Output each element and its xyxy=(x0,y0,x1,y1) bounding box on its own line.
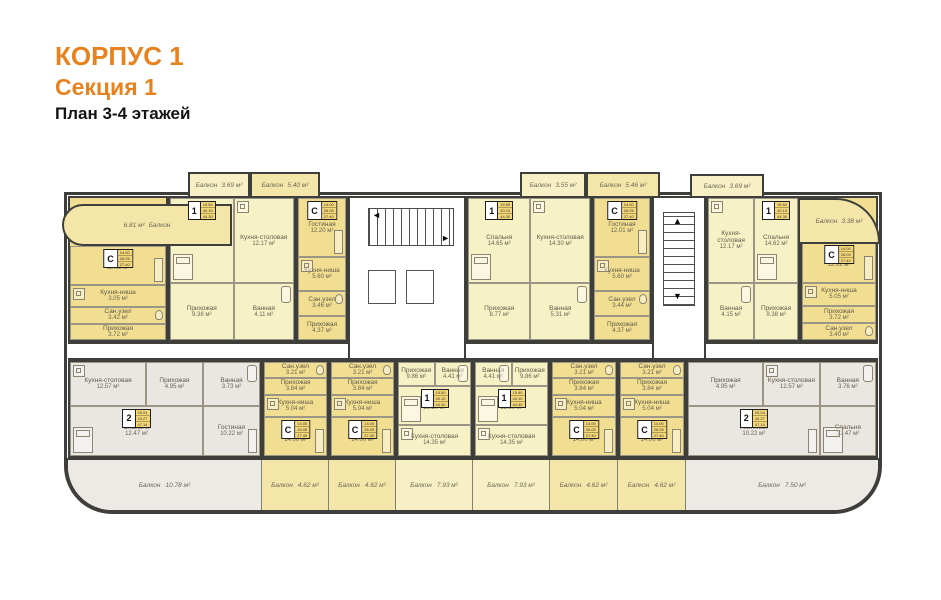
apartment-type-badge: 115.5040.1044.30 xyxy=(497,389,525,408)
area-table-value: 27.40 xyxy=(118,262,132,267)
bathtub-icon xyxy=(458,365,468,382)
room-hallway: Прихожая8.77 м² xyxy=(468,283,530,340)
room-name-label: Кухня-столовая xyxy=(537,234,584,241)
apartment-type-badge: С14.0026.0527.40 xyxy=(103,249,133,268)
apartment-type-badge: 115.5040.1044.30 xyxy=(420,389,448,408)
staircase-icon: ◄► xyxy=(368,208,454,246)
balcony-top-2: Балкон3.69 м² xyxy=(188,172,250,198)
room-kitchen-dining: Кухня-столовая14.30 м² xyxy=(530,198,590,283)
area-table-value: 44.30 xyxy=(511,402,525,407)
apartment-area-table: 15.5040.1044.30 xyxy=(497,202,512,219)
sofa-icon xyxy=(638,230,647,254)
room-area-label: 3.42 м² xyxy=(108,315,127,322)
room-hallway: Прихожая3.84 м² xyxy=(264,378,327,394)
room-area-label: 4.95 м² xyxy=(716,384,735,391)
bathtub-icon xyxy=(281,286,291,303)
apartment-unit-lower-4: Прихожая9.86 м²Ванная4.41 м²Спальня15.50… xyxy=(396,360,473,458)
area-table-value: 27.40 xyxy=(584,433,598,438)
room-hallway: Прихожая3.84 м² xyxy=(552,378,616,394)
room-name-label: Прихожая xyxy=(637,379,667,386)
apartment-type-letter: 2 xyxy=(123,410,134,427)
balcony-label: Балкон xyxy=(271,482,293,489)
room-name-label: Прихожая xyxy=(280,379,310,386)
bathtub-icon xyxy=(247,365,257,382)
room-area-label: 5.31 м² xyxy=(551,312,570,319)
apartment-area-table: 25.0443.2747.14 xyxy=(752,410,767,427)
room-name-label: Ванная xyxy=(720,305,742,312)
sofa-icon xyxy=(315,429,324,453)
room-name-label: Сан.узел xyxy=(349,363,376,370)
room-name-label: Ванная xyxy=(220,377,242,384)
stair-arrow-down-icon: ▼ xyxy=(673,292,682,301)
stair-core-1: ◄► xyxy=(348,196,466,360)
apartment-unit-upper-6: Кухня-столовая12.17 м²Спальня14.62 м²115… xyxy=(706,196,800,342)
room-hallway: Прихожая3.72 м² xyxy=(802,306,876,323)
room-name-label: Гостиная xyxy=(308,221,335,228)
room-bathroom: Ванная4.41 м² xyxy=(475,362,512,386)
stove-icon xyxy=(597,260,609,272)
balcony-bottom-8: Балкон7.50 м² xyxy=(686,460,878,510)
area-table-value: 27.40 xyxy=(622,214,636,219)
apartment-area-table: 14.0026.0527.40 xyxy=(361,421,376,438)
apartment-area-table: 14.0026.0527.40 xyxy=(294,421,309,438)
room-hallway: Прихожая3.72 м² xyxy=(70,324,166,340)
room-name-label: Прихожая xyxy=(761,305,791,312)
room-area-label: 9.86 м² xyxy=(520,374,539,381)
apartment-unit-upper-5: Гостиная12.01 м²С14.0026.0527.40Кухня-ни… xyxy=(592,196,652,342)
balcony-bottom-1: Балкон10.78 м² xyxy=(68,460,262,510)
balcony-label: Балкон xyxy=(410,482,432,489)
room-area-label: 3.73 м² xyxy=(222,384,241,391)
apartment-unit-upper-3: Гостиная12.20 м²С14.0026.0527.40Кухня-ни… xyxy=(296,196,348,342)
room-area-label: 14.62 м² xyxy=(765,241,788,248)
bathtub-icon xyxy=(499,365,509,382)
stair-core-2: ▲▼ xyxy=(652,196,706,360)
bed-icon xyxy=(401,396,421,422)
room-area-label: 12.17 м² xyxy=(720,244,743,251)
room-living-room: Гостиная10.22 м²225.0443.2747.14 xyxy=(688,406,820,456)
room-name-label: Кухня-ниша xyxy=(345,399,381,406)
apartment-unit-lower-2: Сан.узел3.21 м²Прихожая3.84 м²Кухня-ниша… xyxy=(262,360,329,458)
room-area-label: 3.40 м² xyxy=(829,332,848,339)
apartment-area-table: 14.0026.0527.40 xyxy=(117,250,132,267)
room-bathroom: Ванная3.73 м² xyxy=(203,362,260,406)
balcony-area-label: 4.62 м² xyxy=(298,482,319,489)
room-hallway: Прихожая3.84 м² xyxy=(620,378,684,394)
apartment-type-letter: 1 xyxy=(421,390,432,407)
apartment-type-letter: С xyxy=(570,421,583,438)
room-living-room: Гостиная14.00 м²С14.0026.0527.40 xyxy=(620,417,684,456)
room-area-label: 12.47 м² xyxy=(125,431,148,438)
apartment-unit-lower-8: Прихожая4.95 м²Кухня-столовая12.57 м²Ван… xyxy=(686,360,878,458)
bed-icon xyxy=(173,254,193,280)
room-wc: Сан.узел3.46 м² xyxy=(298,291,346,315)
apartment-unit-lower-1: Кухня-столовая12.57 м²Прихожая4.95 м²Ван… xyxy=(68,360,262,458)
apartment-type-letter: С xyxy=(104,250,117,267)
balcony-area-label: 5.40 м² xyxy=(287,182,308,189)
room-name-label: Прихожая xyxy=(607,321,637,328)
room-bedroom: Спальня12.47 м² xyxy=(820,406,876,456)
room-name-label: Прихожая xyxy=(401,367,431,374)
stove-icon xyxy=(334,398,346,410)
room-area-label: 12.57 м² xyxy=(97,384,120,391)
balcony-area-label: 4.62 м² xyxy=(586,482,607,489)
bed-icon xyxy=(823,427,843,453)
room-living-room: Гостиная12.02 м²С14.0026.0527.40 xyxy=(70,246,166,285)
balcony-area-label: 7.50 м² xyxy=(785,482,806,489)
room-name-label: Прихожая xyxy=(103,325,133,332)
room-name-label: Кухня-столовая xyxy=(84,377,131,384)
toilet-icon xyxy=(605,365,613,375)
apartment-type-badge: С14.0026.0527.40 xyxy=(607,201,637,220)
room-name-label: Кухня-столовая xyxy=(488,433,535,440)
room-wc: Сан.узел3.42 м² xyxy=(70,307,166,323)
room-name-label: Кухня-столовая xyxy=(411,433,458,440)
room-bathroom: Ванная4.15 м² xyxy=(708,283,754,340)
room-area-label: 3.84 м² xyxy=(642,386,661,393)
room-name-label: Кухня-ниша xyxy=(566,399,602,406)
room-living-room: Гостиная14.00 м²С14.0026.0527.40 xyxy=(552,417,616,456)
toilet-icon xyxy=(316,365,324,375)
stove-icon xyxy=(73,365,85,377)
balcony-area-label: 7.93 м² xyxy=(437,482,458,489)
room-bedroom: Спальня15.50 м²115.5040.1044.30 xyxy=(475,386,548,425)
room-kitchen-niche: Кухня-ниша5.05 м² xyxy=(802,283,876,306)
room-name-label: Кухня-ниша xyxy=(278,399,314,406)
balcony-area-label: 10.78 м² xyxy=(166,482,191,489)
room-area-label: 12.57 м² xyxy=(780,384,803,391)
room-name-label: Кухня-ниша xyxy=(100,289,136,296)
room-area-label: 5.04 м² xyxy=(642,406,661,413)
area-table-value: 27.40 xyxy=(362,433,376,438)
room-name-label: Сан.узел xyxy=(638,363,665,370)
sofa-icon xyxy=(604,429,613,453)
apartment-type-letter: С xyxy=(282,421,295,438)
room-bathroom: Ванная4.41 м² xyxy=(435,362,472,386)
room-hallway: Прихожая4.37 м² xyxy=(298,316,346,340)
balcony-label: Балкон xyxy=(196,182,218,189)
room-area-label: 3.84 м² xyxy=(574,386,593,393)
room-bathroom: Ванная4.11 м² xyxy=(234,283,294,340)
apartment-type-badge: 115.5040.1044.30 xyxy=(485,201,513,220)
room-name-label: Прихожая xyxy=(159,377,189,384)
room-kitchen-dining: Кухня-столовая12.57 м² xyxy=(70,362,146,406)
balcony-label: Балкон xyxy=(149,222,171,229)
sofa-icon xyxy=(382,429,391,453)
room-area-label: 5.60 м² xyxy=(612,274,631,281)
balcony-label: Балкон xyxy=(816,218,838,225)
room-area-label: 8.77 м² xyxy=(490,312,509,319)
room-kitchen-niche: Кухня-ниша5.60 м² xyxy=(298,257,346,291)
balcony-bottom-4: Балкон7.93 м² xyxy=(396,460,473,510)
apartment-type-letter: 1 xyxy=(189,202,200,219)
room-name-label: Прихожая xyxy=(569,379,599,386)
area-table-value: 44.30 xyxy=(775,214,789,219)
balcony-area-label: 3.55 м² xyxy=(555,182,576,189)
sofa-icon xyxy=(808,429,817,453)
balcony-bottom-7: Балкон4.62 м² xyxy=(618,460,686,510)
room-living-room: Гостиная12.20 м²С14.0026.0527.40 xyxy=(298,198,346,257)
stove-icon xyxy=(766,365,778,377)
apartment-area-table: 14.0026.0527.40 xyxy=(621,202,636,219)
room-area-label: 5.05 м² xyxy=(829,294,848,301)
room-area-label: 5.04 м² xyxy=(353,406,372,413)
apartment-type-badge: С14.0026.0527.40 xyxy=(307,201,337,220)
toilet-icon xyxy=(639,294,647,304)
apartment-area-table: 15.5040.1044.30 xyxy=(200,202,215,219)
balcony-label: Балкон xyxy=(338,482,360,489)
balcony-label: Балкон xyxy=(139,482,161,489)
balcony-bottom-6: Балкон4.62 м² xyxy=(550,460,618,510)
room-kitchen-niche: Кухня-ниша3.05 м² xyxy=(70,285,166,307)
room-area-label: 14.35 м² xyxy=(423,440,446,447)
room-area-label: 4.95 м² xyxy=(165,384,184,391)
apartment-type-letter: С xyxy=(608,202,621,219)
sofa-icon xyxy=(864,256,873,280)
room-kitchen-dining: Кухня-столовая12.57 м² xyxy=(763,362,819,406)
room-name-label: Сан.узел xyxy=(825,325,852,332)
staircase-icon: ▲▼ xyxy=(663,212,695,306)
room-kitchen-dining: Кухня-столовая14.35 м² xyxy=(398,425,471,456)
stove-icon xyxy=(401,428,413,440)
toilet-icon xyxy=(865,326,873,336)
room-bedroom: Спальня14.65 м²115.5040.1044.30 xyxy=(468,198,530,283)
room-area-label: 4.37 м² xyxy=(612,328,631,335)
stove-icon xyxy=(301,260,313,272)
area-table-value: 27.40 xyxy=(295,433,309,438)
balcony-strip-bottom: Балкон10.78 м²Балкон4.62 м²Балкон4.62 м²… xyxy=(66,458,880,512)
room-name-label: Прихожая xyxy=(711,377,741,384)
room-name-label: Ванная xyxy=(253,305,275,312)
balcony-top-3: Балкон5.40 м² xyxy=(250,172,320,198)
room-kitchen-dining: Кухня-столовая14.35 м² xyxy=(475,425,548,456)
room-hallway: Прихожая4.95 м² xyxy=(146,362,203,406)
room-area-label: 3.21 м² xyxy=(286,370,305,377)
room-area-label: 9.38 м² xyxy=(766,312,785,319)
balcony-label: Балкон xyxy=(758,482,780,489)
room-living-room: Гостиная12.01 м²С14.0026.0527.40 xyxy=(594,198,650,257)
balcony-label: Балкон xyxy=(262,182,284,189)
area-table-value: 47.14 xyxy=(135,422,149,427)
room-hallway: Прихожая9.38 м² xyxy=(170,283,234,340)
room-kitchen-niche: Кухня-ниша5.04 м² xyxy=(331,395,394,417)
room-area-label: 9.38 м² xyxy=(192,312,211,319)
apartment-type-badge: С14.0026.0527.40 xyxy=(348,420,378,439)
sofa-icon xyxy=(154,258,163,282)
balcony-label: Балкон xyxy=(600,182,622,189)
room-kitchen-niche: Кухня-ниша5.04 м² xyxy=(620,395,684,417)
apartment-area-table: 14.0026.0527.40 xyxy=(651,421,666,438)
apartment-type-badge: С14.0026.0527.40 xyxy=(281,420,311,439)
room-bedroom: Спальня14.62 м²115.5040.1044.30 xyxy=(754,198,798,283)
balcony-label: Балкон xyxy=(530,182,552,189)
room-area-label: 5.04 м² xyxy=(574,406,593,413)
room-hallway: Прихожая3.84 м² xyxy=(331,378,394,394)
room-name-label: Сан.узел xyxy=(608,296,635,303)
room-name-label: Прихожая xyxy=(347,379,377,386)
room-name-label: Спальня xyxy=(763,234,789,241)
room-name-label: Прихожая xyxy=(187,305,217,312)
room-name-label: Ванная xyxy=(549,305,571,312)
bed-icon xyxy=(73,427,93,453)
apartment-type-badge: 115.5040.1044.30 xyxy=(188,201,216,220)
room-hallway: Прихожая9.38 м² xyxy=(754,283,798,340)
balcony-label: Балкон xyxy=(560,482,582,489)
stove-icon xyxy=(623,398,635,410)
balcony-bottom-2: Балкон4.62 м² xyxy=(262,460,329,510)
room-name-label: Прихожая xyxy=(515,367,545,374)
room-area-label: 3.44 м² xyxy=(612,303,631,310)
room-kitchen-dining: Кухня-столовая12.17 м² xyxy=(708,198,754,283)
room-name-label: Кухня-столовая xyxy=(768,377,815,384)
apartment-unit-lower-7: Сан.узел3.21 м²Прихожая3.84 м²Кухня-ниша… xyxy=(618,360,686,458)
sofa-icon xyxy=(672,429,681,453)
bathtub-icon xyxy=(863,365,873,382)
room-area-label: 4.11 м² xyxy=(254,312,273,319)
floor-plan-page: КОРПУС 1 Секция 1 План 3-4 этажей Гостин… xyxy=(0,0,941,600)
apartment-area-table: 14.0026.0527.40 xyxy=(321,202,336,219)
bed-icon xyxy=(471,254,491,280)
room-wc: Сан.узел3.21 м² xyxy=(331,362,394,378)
apartment-type-badge: 115.5040.1044.30 xyxy=(762,201,790,220)
room-name-label: Гостиная xyxy=(608,221,635,228)
toilet-icon xyxy=(383,365,391,375)
apartment-type-letter: 1 xyxy=(486,202,497,219)
balcony-area-label: 7.93 м² xyxy=(514,482,535,489)
room-name-label: Прихожая xyxy=(824,308,854,315)
room-area-label: 9.86 м² xyxy=(407,374,426,381)
apartment-type-letter: С xyxy=(308,202,321,219)
room-area-label: 4.15 м² xyxy=(721,312,740,319)
area-table-value: 27.40 xyxy=(322,214,336,219)
balcony-label: Балкон xyxy=(628,482,650,489)
balcony-bottom-5: Балкон7.93 м² xyxy=(473,460,550,510)
room-area-label: 4.37 м² xyxy=(312,328,331,335)
room-hallway: Прихожая9.86 м² xyxy=(398,362,435,386)
room-name-label: Ванная xyxy=(837,377,859,384)
room-name-label: Сан.узел xyxy=(570,363,597,370)
stair-arrow-right-icon: ► xyxy=(441,234,450,243)
apartment-unit-lower-3: Сан.узел3.21 м²Прихожая3.84 м²Кухня-ниша… xyxy=(329,360,396,458)
room-name-label: Спальня xyxy=(486,234,512,241)
room-area-label: 3.76 м² xyxy=(838,384,857,391)
room-living-room: Гостиная10.22 м² xyxy=(203,406,260,456)
room-area-label: 3.46 м² xyxy=(312,303,331,310)
room-area-label: 12.01 м² xyxy=(611,228,634,235)
room-area-label: 3.05 м² xyxy=(108,296,127,303)
room-area-label: 3.84 м² xyxy=(286,386,305,393)
room-name-label: Кухня-ниша xyxy=(604,267,640,274)
balcony-label: Балкон xyxy=(704,183,726,190)
room-area-label: 5.04 м² xyxy=(286,406,305,413)
room-area-label: 14.35 м² xyxy=(500,440,523,447)
room-area-label: 3.84 м² xyxy=(353,386,372,393)
toilet-icon xyxy=(155,310,163,320)
apartment-area-table: 14.0026.0527.40 xyxy=(838,246,853,263)
sofa-icon xyxy=(334,230,343,254)
room-living-room: Гостиная12.02 м²С14.0026.0527.40 xyxy=(802,242,876,283)
area-table-value: 44.30 xyxy=(201,214,215,219)
balcony-bottom-3: Балкон4.62 м² xyxy=(329,460,396,510)
room-area-label: 10.22 м² xyxy=(220,431,243,438)
room-bathroom: Ванная3.76 м² xyxy=(820,362,876,406)
room-kitchen-niche: Кухня-ниша5.60 м² xyxy=(594,257,650,291)
room-wc: Сан.узел3.21 м² xyxy=(552,362,616,378)
room-area-label: 10.22 м² xyxy=(742,431,765,438)
balcony-area-label: 6.81 м² xyxy=(124,222,145,229)
room-wc: Сан.узел3.44 м² xyxy=(594,291,650,315)
apartment-type-badge: С14.0026.0527.40 xyxy=(824,245,854,264)
room-area-label: 3.72 м² xyxy=(108,332,127,339)
bathtub-icon xyxy=(577,286,587,303)
balcony-top-5: Балкон5.46 м² xyxy=(586,172,660,198)
room-area-label: 5.60 м² xyxy=(312,274,331,281)
apartment-unit-lower-5: Ванная4.41 м²Прихожая9.86 м²Спальня15.50… xyxy=(473,360,550,458)
room-kitchen-niche: Кухня-ниша5.04 м² xyxy=(264,395,327,417)
room-name-label: Гостиная xyxy=(218,424,245,431)
stove-icon xyxy=(267,398,279,410)
stove-icon xyxy=(237,201,249,213)
toilet-icon xyxy=(673,365,681,375)
common-corridor xyxy=(68,342,878,360)
stove-icon xyxy=(73,288,85,300)
apartment-type-letter: 1 xyxy=(498,390,509,407)
room-hallway: Прихожая4.37 м² xyxy=(594,316,650,340)
apartment-area-table: 14.0026.0527.40 xyxy=(583,421,598,438)
apartment-unit-lower-6: Сан.узел3.21 м²Прихожая3.84 м²Кухня-ниша… xyxy=(550,360,618,458)
room-kitchen-dining: Кухня-столовая12.17 м² xyxy=(234,198,294,283)
apartment-type-badge: 225.0443.2747.14 xyxy=(740,409,768,428)
area-table-value: 47.14 xyxy=(753,422,767,427)
balcony-top-6: Балкон3.69 м² xyxy=(690,174,764,198)
balcony-area-label: 3.69 м² xyxy=(729,183,750,190)
room-area-label: 3.21 м² xyxy=(353,370,372,377)
room-living-room: Гостиная14.00 м²С14.0026.0527.40 xyxy=(264,417,327,456)
room-area-label: 3.21 м² xyxy=(642,370,661,377)
room-name-label: Прихожая xyxy=(484,305,514,312)
stair-arrow-left-icon: ◄ xyxy=(372,211,381,220)
balcony-area-label: 4.62 м² xyxy=(654,482,675,489)
bed-icon xyxy=(757,254,777,280)
room-hallway: Прихожая9.86 м² xyxy=(512,362,549,386)
floor-plan: Гостиная12.02 м²С14.0026.0527.40Кухня-ни… xyxy=(0,0,941,600)
apartment-type-badge: С14.0026.0527.40 xyxy=(569,420,599,439)
room-area-label: 14.30 м² xyxy=(549,241,572,248)
room-wc: Сан.узел3.21 м² xyxy=(620,362,684,378)
room-area-label: 3.72 м² xyxy=(829,315,848,322)
sofa-icon xyxy=(248,429,257,453)
room-name-label: Кухня-столовая xyxy=(240,234,287,241)
apartment-type-badge: 225.0443.2747.14 xyxy=(122,409,150,428)
stair-arrow-up-icon: ▲ xyxy=(673,217,682,226)
balcony-area-label: 4.62 м² xyxy=(365,482,386,489)
area-table-value: 44.30 xyxy=(498,214,512,219)
balcony-top-4: Балкон3.55 м² xyxy=(520,172,586,198)
room-bedroom: Спальня12.47 м²225.0443.2747.14 xyxy=(70,406,203,456)
toilet-icon xyxy=(335,294,343,304)
room-area-label: 12.20 м² xyxy=(311,228,334,235)
balcony-area-label: 3.69 м² xyxy=(221,182,242,189)
apartment-type-badge: С14.0026.0527.40 xyxy=(637,420,667,439)
room-area-label: 12.17 м² xyxy=(252,241,275,248)
bathtub-icon xyxy=(741,286,751,303)
room-name-label: Кухня-ниша xyxy=(821,287,857,294)
balcony-area-label: 5.46 м² xyxy=(625,182,646,189)
balcony-area-label: 3.38 м² xyxy=(841,218,862,225)
area-table-value: 44.30 xyxy=(434,402,448,407)
stove-icon xyxy=(711,201,723,213)
balcony-label: Балкон xyxy=(487,482,509,489)
